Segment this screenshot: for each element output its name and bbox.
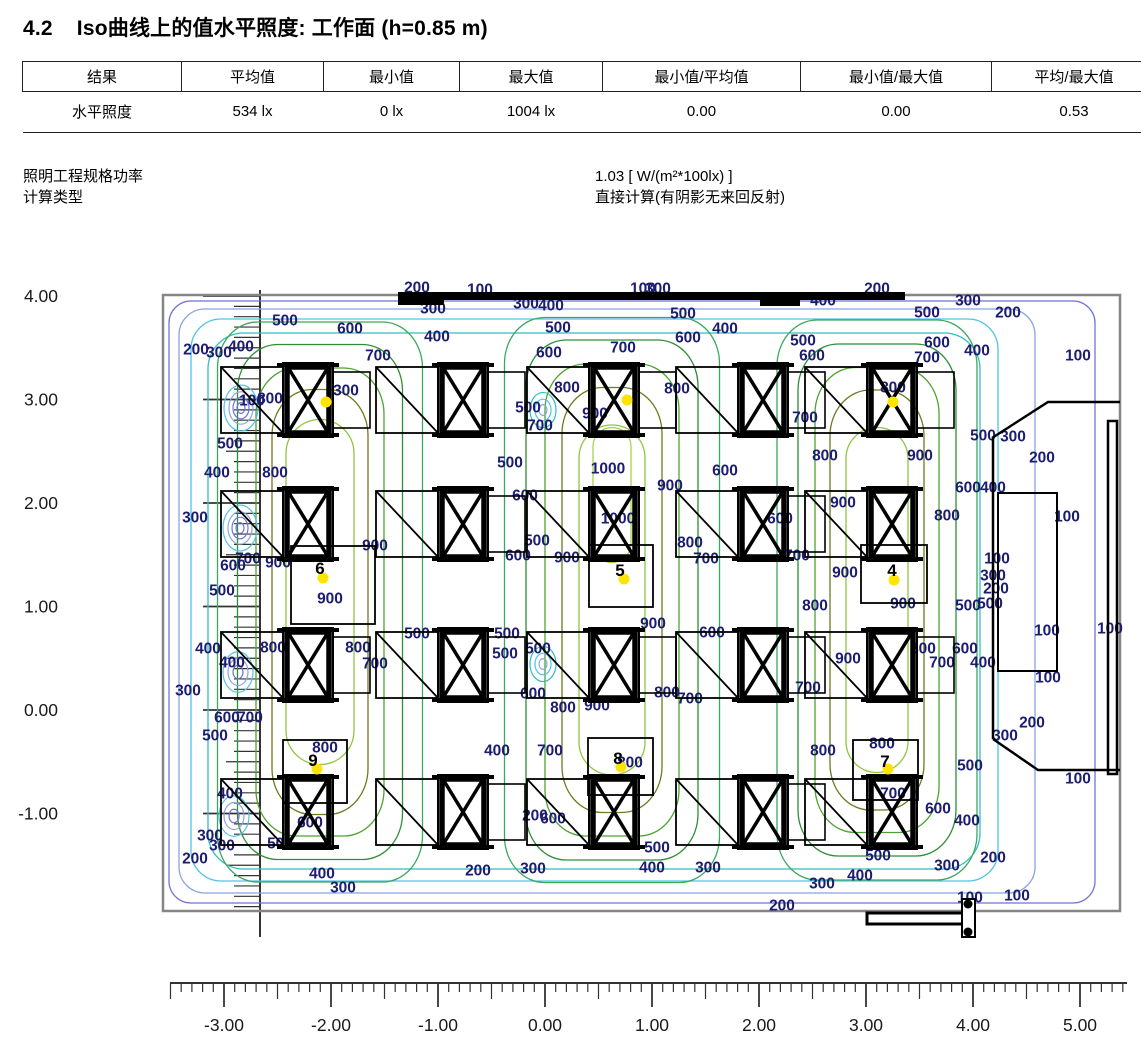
plot-text: 300 (333, 383, 359, 400)
plot-text: 500 (957, 758, 983, 775)
plot-text: 1000 (591, 461, 625, 478)
plot-text: 400 (712, 321, 738, 338)
plot-text: 400 (204, 465, 230, 482)
plot-text: 400 (195, 641, 221, 658)
table-cell: 0.53 (992, 92, 1141, 133)
door-hinge (964, 928, 973, 937)
plot-text: 600 (520, 686, 546, 703)
plot-text: 900 (830, 495, 856, 512)
plot-text: 800 (664, 381, 690, 398)
x-axis-ruler: -3.00-2.00-1.000.001.002.003.004.005.00 (170, 983, 1127, 1035)
desk-diagonal (676, 779, 738, 845)
desk-diagonal (676, 367, 738, 433)
plot-text: 500 (914, 305, 940, 322)
side-table (788, 496, 825, 552)
shadow-pocket-contour (539, 659, 547, 670)
plot-text: 500 (515, 400, 541, 417)
plot-text: 700 (795, 680, 821, 697)
plot-text: 400 (847, 868, 873, 885)
plot-text: 300 (330, 880, 356, 897)
plot-text: 400 (219, 655, 245, 672)
plot-text: 700 (365, 348, 391, 365)
plot-text: 900 (907, 448, 933, 465)
plot-text: 900 (657, 478, 683, 495)
info-value-power: 1.03 [ W/(m²*100lx) ] (595, 166, 785, 187)
plot-text: 800 (934, 508, 960, 525)
info-labels: 照明工程规格功率 计算类型 (23, 166, 143, 208)
workstation (376, 363, 525, 437)
table-cell: 534 lx (182, 92, 324, 133)
side-table (488, 784, 525, 840)
table-cell: 水平照度 (23, 92, 182, 133)
results-table: 结果平均值最小值最大值最小值/平均值最小值/最大值平均/最大值 水平照度534 … (22, 61, 1141, 133)
plot-text: 300 (182, 510, 208, 527)
plot-text: 800 (262, 465, 288, 482)
plot-text: 500 (209, 583, 235, 600)
plot-text: 700 (237, 710, 263, 727)
plot-text: 700 (235, 551, 261, 568)
contour-labels: 1002003003004005006004002003004005006007… (175, 280, 1123, 915)
plot-text: 500 (545, 320, 571, 337)
plot-text: 900 (317, 591, 343, 608)
shadow-pocket-contour (224, 803, 244, 830)
plot-text: 300 (695, 860, 721, 877)
plot-text: 5 (615, 561, 624, 580)
whiteboard-segment (760, 292, 800, 306)
info-values: 1.03 [ W/(m²*100lx) ] 直接计算(有阴影无来回反射) (595, 166, 785, 208)
whiteboard (398, 292, 905, 300)
plot-text: 800 (345, 640, 371, 657)
contour-line-800 (562, 388, 662, 813)
plot-text: 4.00 (24, 286, 58, 306)
plot-text: 5.00 (1063, 1015, 1097, 1035)
luminaire-dot (888, 397, 899, 408)
results-table-head: 结果平均值最小值最大值最小值/平均值最小值/最大值平均/最大值 (23, 62, 1141, 92)
plot-text: 100 (1065, 348, 1091, 365)
plot-text: 300 (955, 293, 981, 310)
plot-text: 500 (202, 728, 228, 745)
plot-text: 200 (465, 863, 491, 880)
plot-text: 600 (955, 480, 981, 497)
plot-text: 200 (995, 305, 1021, 322)
plot-text: 3.00 (24, 390, 58, 410)
plot-text: 600 (675, 330, 701, 347)
plot-text: 700 (610, 340, 636, 357)
plot-text: 8 (613, 749, 622, 768)
results-table-body: 水平照度534 lx0 lx1004 lx0.000.000.53 (23, 92, 1141, 133)
plot-text: 600 (799, 348, 825, 365)
desk-diagonal (376, 779, 438, 845)
plot-text: -1.00 (18, 804, 58, 824)
plot-text: 400 (639, 860, 665, 877)
plot-text: 100 (1035, 670, 1061, 687)
plot-text: 500 (865, 848, 891, 865)
plot-text: 900 (835, 651, 861, 668)
luminaire-dot (321, 397, 332, 408)
title-text: Iso曲线上的值水平照度: 工作面 (h=0.85 m) (77, 17, 488, 40)
plot-text: 2.00 (742, 1015, 776, 1035)
shadow-pocket-contour (232, 517, 248, 539)
plot-text: 400 (954, 813, 980, 830)
plot-text: 300 (934, 858, 960, 875)
plot-text: 800 (812, 448, 838, 465)
plot-text: 200 (182, 851, 208, 868)
door-hinge (964, 900, 973, 909)
plot-text: 600 (214, 710, 240, 727)
workstation (805, 487, 923, 561)
plot-text: 100 (1004, 888, 1030, 905)
plot-text: 900 (832, 565, 858, 582)
plot-text: 0.00 (24, 700, 58, 720)
plot-text: 700 (693, 551, 719, 568)
plot-text: 200 (1019, 715, 1045, 732)
plot-text: 300 (175, 683, 201, 700)
isoline-plot: -3.00-2.00-1.000.001.002.003.004.005.004… (0, 260, 1141, 1047)
plot-text: 100 (1065, 771, 1091, 788)
plot-text: 500 (494, 626, 520, 643)
plot-text: 700 (362, 656, 388, 673)
plot-text: 800 (554, 380, 580, 397)
plot-text: 0.00 (528, 1015, 562, 1035)
workstation (376, 775, 525, 849)
side-table (917, 372, 954, 428)
plot-text: -1.00 (418, 1015, 458, 1035)
plot-text: 900 (890, 596, 916, 613)
desk-diagonal (376, 367, 438, 433)
plot-text: 500 (497, 455, 523, 472)
table-cell: 0.00 (603, 92, 801, 133)
plot-text: 800 (677, 535, 703, 552)
plot-text: 500 (977, 596, 1003, 613)
plot-text: 500 (217, 436, 243, 453)
info-label-power: 照明工程规格功率 (23, 166, 143, 187)
plot-text: 800 (550, 700, 576, 717)
plot-text: 200 (1029, 450, 1055, 467)
plot-text: 600 (699, 625, 725, 642)
wall-column (1108, 421, 1117, 774)
luminaire-markers: 654987 (308, 395, 899, 775)
plot-text: 700 (537, 743, 563, 760)
plot-text: 400 (964, 343, 990, 360)
table-cell: 0.00 (801, 92, 992, 133)
plot-text: 1.00 (24, 597, 58, 617)
plot-text: 700 (929, 655, 955, 672)
plot-text: 4 (887, 561, 897, 580)
plot-text: 500 (644, 840, 670, 857)
plot-text: 800 (802, 598, 828, 615)
plot-text: 600 (925, 801, 951, 818)
plot-text: 300 (520, 861, 546, 878)
page-title: 4.2Iso曲线上的值水平照度: 工作面 (h=0.85 m) (23, 12, 488, 42)
column-header: 平均值 (182, 62, 324, 92)
plot-text: 100 (1097, 621, 1123, 638)
plot-text: 500 (404, 626, 430, 643)
plot-text: 700 (527, 418, 553, 435)
side-table (788, 784, 825, 840)
plot-text: 600 (536, 345, 562, 362)
luminaire-dot (622, 395, 633, 406)
plot-text: 500 (955, 598, 981, 615)
whiteboard-segment (398, 292, 444, 305)
plot-text: 9 (308, 751, 317, 770)
plot-text: 4.00 (956, 1015, 990, 1035)
table-row: 水平照度534 lx0 lx1004 lx0.000.000.53 (23, 92, 1141, 133)
plot-text: 200 (980, 850, 1006, 867)
workstation (376, 487, 525, 561)
plot-text: 400 (228, 339, 254, 356)
plot-text: 300 (209, 838, 235, 855)
plot-text: -2.00 (311, 1015, 351, 1035)
plot-text: 500 (492, 646, 518, 663)
plot-text: 6 (315, 559, 324, 578)
side-table (333, 372, 370, 428)
plot-text: 3.00 (849, 1015, 883, 1035)
plot-text: 300 (809, 876, 835, 893)
plot-text: 7 (880, 752, 889, 771)
plot-text: 600 (337, 321, 363, 338)
column-header: 最小值/最大值 (801, 62, 992, 92)
plot-text: -3.00 (204, 1015, 244, 1035)
plot-text: 800 (810, 743, 836, 760)
plot-text: 500 (670, 306, 696, 323)
plot-text: 900 (554, 550, 580, 567)
column-header: 结果 (23, 62, 182, 92)
column-header: 最小值 (324, 62, 460, 92)
plot-text: 1.00 (635, 1015, 669, 1035)
plot-text: 600 (540, 811, 566, 828)
plot-text: 500 (272, 313, 298, 330)
plot-text: 400 (484, 743, 510, 760)
plot-text: 800 (869, 736, 895, 753)
plot-text: 200 (183, 342, 209, 359)
column-header: 平均/最大值 (992, 62, 1141, 92)
plot-text: 200 (769, 898, 795, 915)
plot-text: 400 (538, 298, 564, 315)
plot-text: 700 (677, 691, 703, 708)
table-cell: 0 lx (324, 92, 460, 133)
desk-diagonal (676, 632, 738, 698)
plot-text: 400 (424, 329, 450, 346)
section-number: 4.2 (23, 17, 53, 41)
door-leaf (867, 913, 970, 924)
info-value-calc-type: 直接计算(有阴影无来回反射) (595, 187, 785, 208)
column-header: 最大值 (460, 62, 603, 92)
column-header: 最小值/平均值 (603, 62, 801, 92)
plot-text: 2.00 (24, 493, 58, 513)
workstation (805, 363, 954, 437)
plot-text: 600 (712, 463, 738, 480)
table-cell: 1004 lx (460, 92, 603, 133)
info-label-calc-type: 计算类型 (23, 187, 143, 208)
